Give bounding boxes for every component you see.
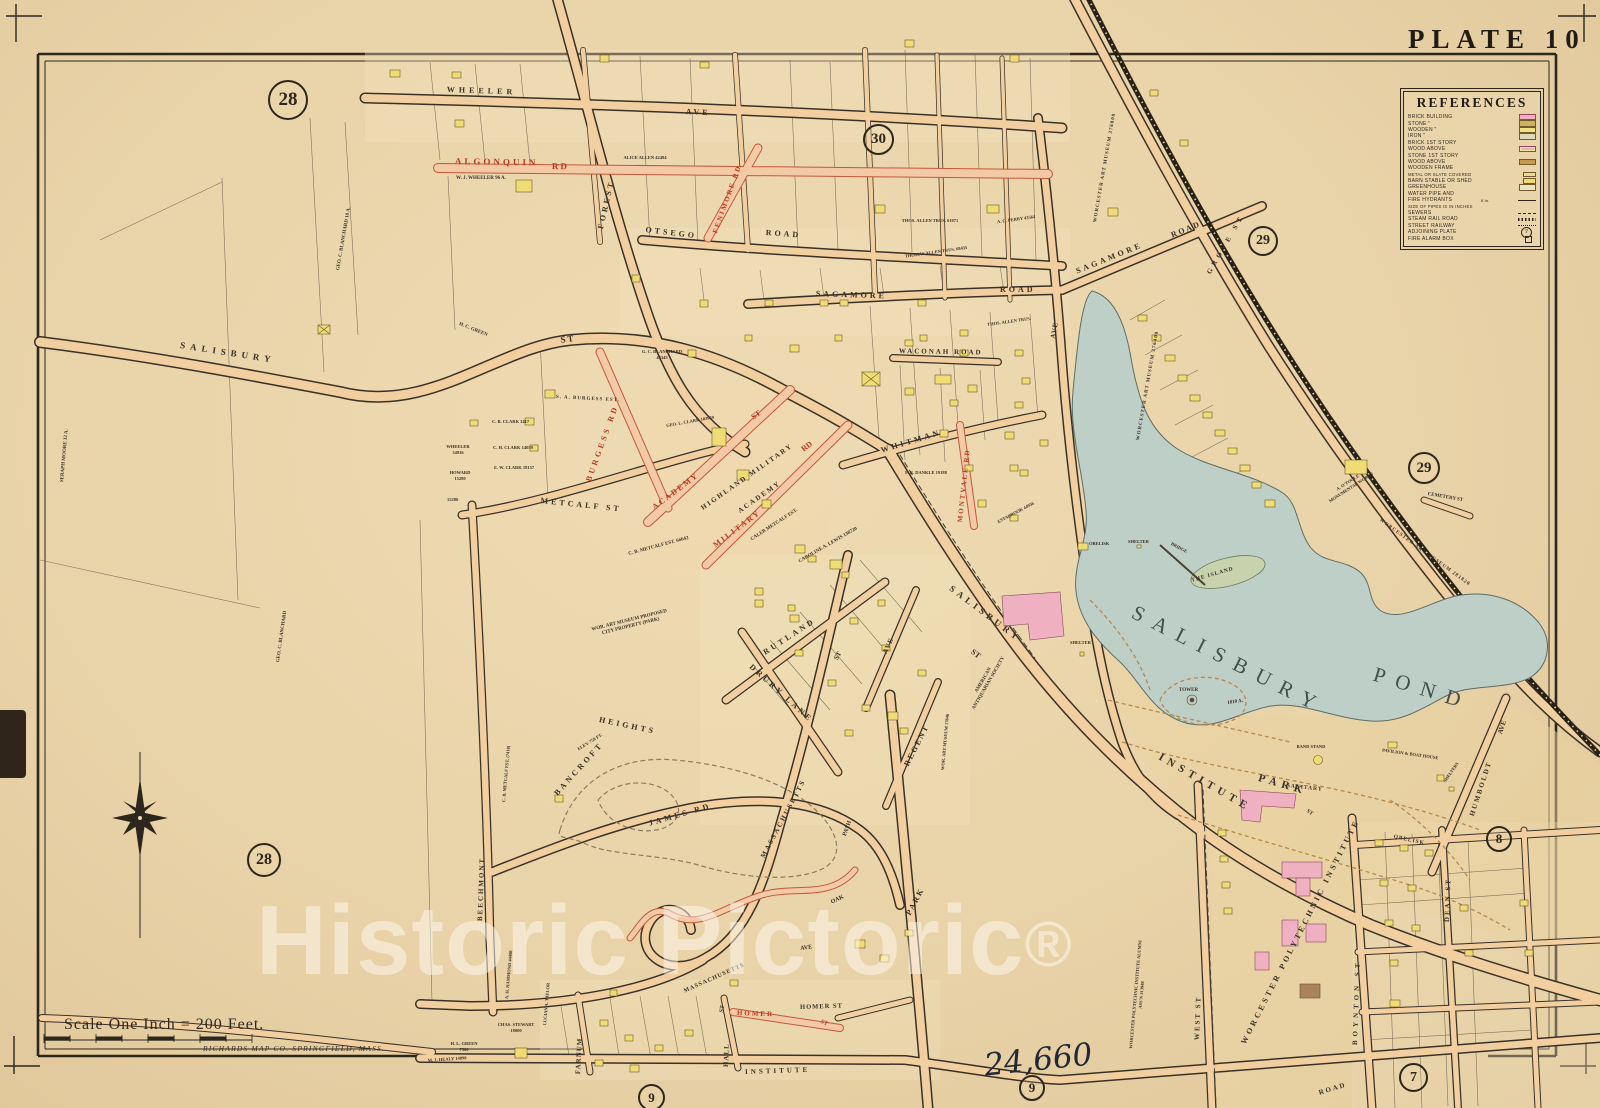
label-wheeler-lot: WHEELER 34936: [442, 444, 474, 455]
label-band-stand: BAND STAND: [1294, 744, 1328, 750]
legend-title: REFERENCES: [1408, 95, 1536, 111]
label-alice-allen: ALICE ALLEN 42494: [622, 155, 668, 161]
street-label-hall-st: ST: [719, 1005, 726, 1013]
label-shelter-bridge: SHELTER: [1128, 540, 1149, 545]
adjoining-plate-28-nw: 28: [268, 80, 308, 120]
legend-label: WATER PIPE AND: [1408, 191, 1454, 197]
barn-swatch-icon: [1523, 178, 1536, 184]
label-lot-15280: 15280: [447, 498, 458, 503]
label-obelisk-bridge: OBELISK: [1089, 542, 1109, 547]
label-shelter-w: SHELTER: [1070, 641, 1091, 646]
legend-label: WOOD ABOVE: [1408, 159, 1445, 165]
label-chas-stewart: CHAS. STEWART 18000: [495, 1022, 537, 1033]
street-label-algonquin: ALGONQUIN: [455, 157, 539, 167]
adjoining-plate-7: 7: [1399, 1063, 1428, 1092]
adjoining-plate-28-w: 28: [247, 843, 281, 877]
compass-rose: [112, 752, 168, 938]
adjoining-plate-30: 30: [863, 124, 894, 155]
legend-label: IRON ": [1408, 133, 1425, 139]
legend-label: FIRE ALARM BOX: [1408, 236, 1454, 242]
watermark: Historic Pictoric®: [256, 884, 1073, 997]
adjoining-plate-9-left: 9: [638, 1084, 665, 1108]
legend-label: BRICK 1ST STORY: [1408, 140, 1457, 146]
street-label-waconah: WACONAH ROAD: [899, 348, 983, 356]
label-thos-allen-n: THOS. ALLEN TRUS. 61871: [901, 218, 959, 224]
publisher-credit: RICHARDS MAP CO. SPRINGFIELD, MASS.: [203, 1044, 385, 1053]
legend-label: SEWERS: [1408, 210, 1431, 216]
adjoining-plate-29-e: 29: [1408, 452, 1440, 484]
legend-label: FIRE HYDRANTS: [1408, 197, 1452, 203]
brick-wood-swatch-icon: [1519, 146, 1536, 153]
street-label-sagamore-w-road: ROAD: [1000, 286, 1036, 294]
greenhouse-swatch-icon: [1519, 184, 1536, 191]
scan-artifact: [0, 710, 26, 778]
iron-swatch-icon: [1519, 133, 1536, 140]
label-hl-green: H. L. GREEN 7500: [446, 1041, 482, 1052]
legend-label: BARN STABLE OR SHED: [1408, 178, 1472, 184]
adjoining-plate-29-ne: 29: [1248, 226, 1278, 256]
legend-label: STONE 1ST STORY: [1408, 153, 1459, 159]
adjoining-plate-8: 8: [1486, 826, 1512, 852]
legend-label: STREET RAILWAY: [1408, 223, 1455, 229]
registered-mark-icon: ®: [1025, 908, 1073, 980]
plate-title: PLATE 10: [1408, 24, 1586, 55]
label-cb-clark: C. B. CLARK 3417: [492, 420, 529, 425]
legend-label: BRICK BUILDING: [1408, 114, 1453, 120]
legend-label: WOODEN FRAME: [1408, 165, 1454, 171]
legend-label: GREENHOUSE: [1408, 184, 1447, 190]
street-label-homer-red: HOMER: [737, 1010, 774, 1018]
sewer-line-icon: [1518, 213, 1536, 214]
salisbury-pond: [1072, 291, 1547, 725]
label-tower: TOWER: [1179, 688, 1198, 693]
label-howard-lot: HOWARD 15280: [444, 470, 476, 481]
fire-alarm-box-icon: [1518, 236, 1536, 242]
legend-label: SIZE OF PIPES IS IN INCHES: [1408, 204, 1473, 209]
label-ch-clark: C. H. CLARK 14059: [493, 446, 533, 451]
water-pipe-icon: [1518, 200, 1536, 201]
legend-label: WOOD ABOVE: [1408, 146, 1445, 152]
legend-label: ADJOINING PLATE: [1408, 229, 1457, 235]
scale-bar: [44, 1034, 252, 1043]
scale-statement: Scale One Inch = 200 Feet.: [64, 1016, 264, 1034]
metal-swatch-icon: [1523, 172, 1536, 178]
steam-railroad-icon: [1518, 218, 1536, 222]
street-label-hall: HALL: [723, 1043, 731, 1067]
label-ew-clark: E. W. CLARK 18157: [494, 466, 534, 471]
legend-label: WOODEN ": [1408, 127, 1437, 133]
legend-note: 6 in.: [1481, 198, 1489, 203]
street-label-wheeler-ave: AVE: [686, 108, 711, 117]
street-label-algonquin-rd: RD: [552, 162, 569, 171]
label-gc-blanchard: G. C. BLANCHARD 44345: [636, 349, 688, 360]
legend-label: STONE ": [1408, 121, 1430, 127]
label-fr-dankle: F. R. DANKLE 19188: [902, 470, 950, 476]
legend-label: STEAM RAIL ROAD: [1408, 216, 1458, 222]
stone-wood-swatch-icon: [1519, 159, 1536, 166]
atlas-map-plate: WHEELER AVE ALGONQUIN RD FENIMORE RD OTS…: [0, 0, 1600, 1108]
legend-label: METAL OR SLATE COVERED: [1408, 172, 1471, 177]
label-wj-wheeler: W. J. WHEELER 96 A.: [448, 176, 514, 182]
references-legend: REFERENCES BRICK BUILDING STONE " WOODEN…: [1403, 91, 1541, 247]
